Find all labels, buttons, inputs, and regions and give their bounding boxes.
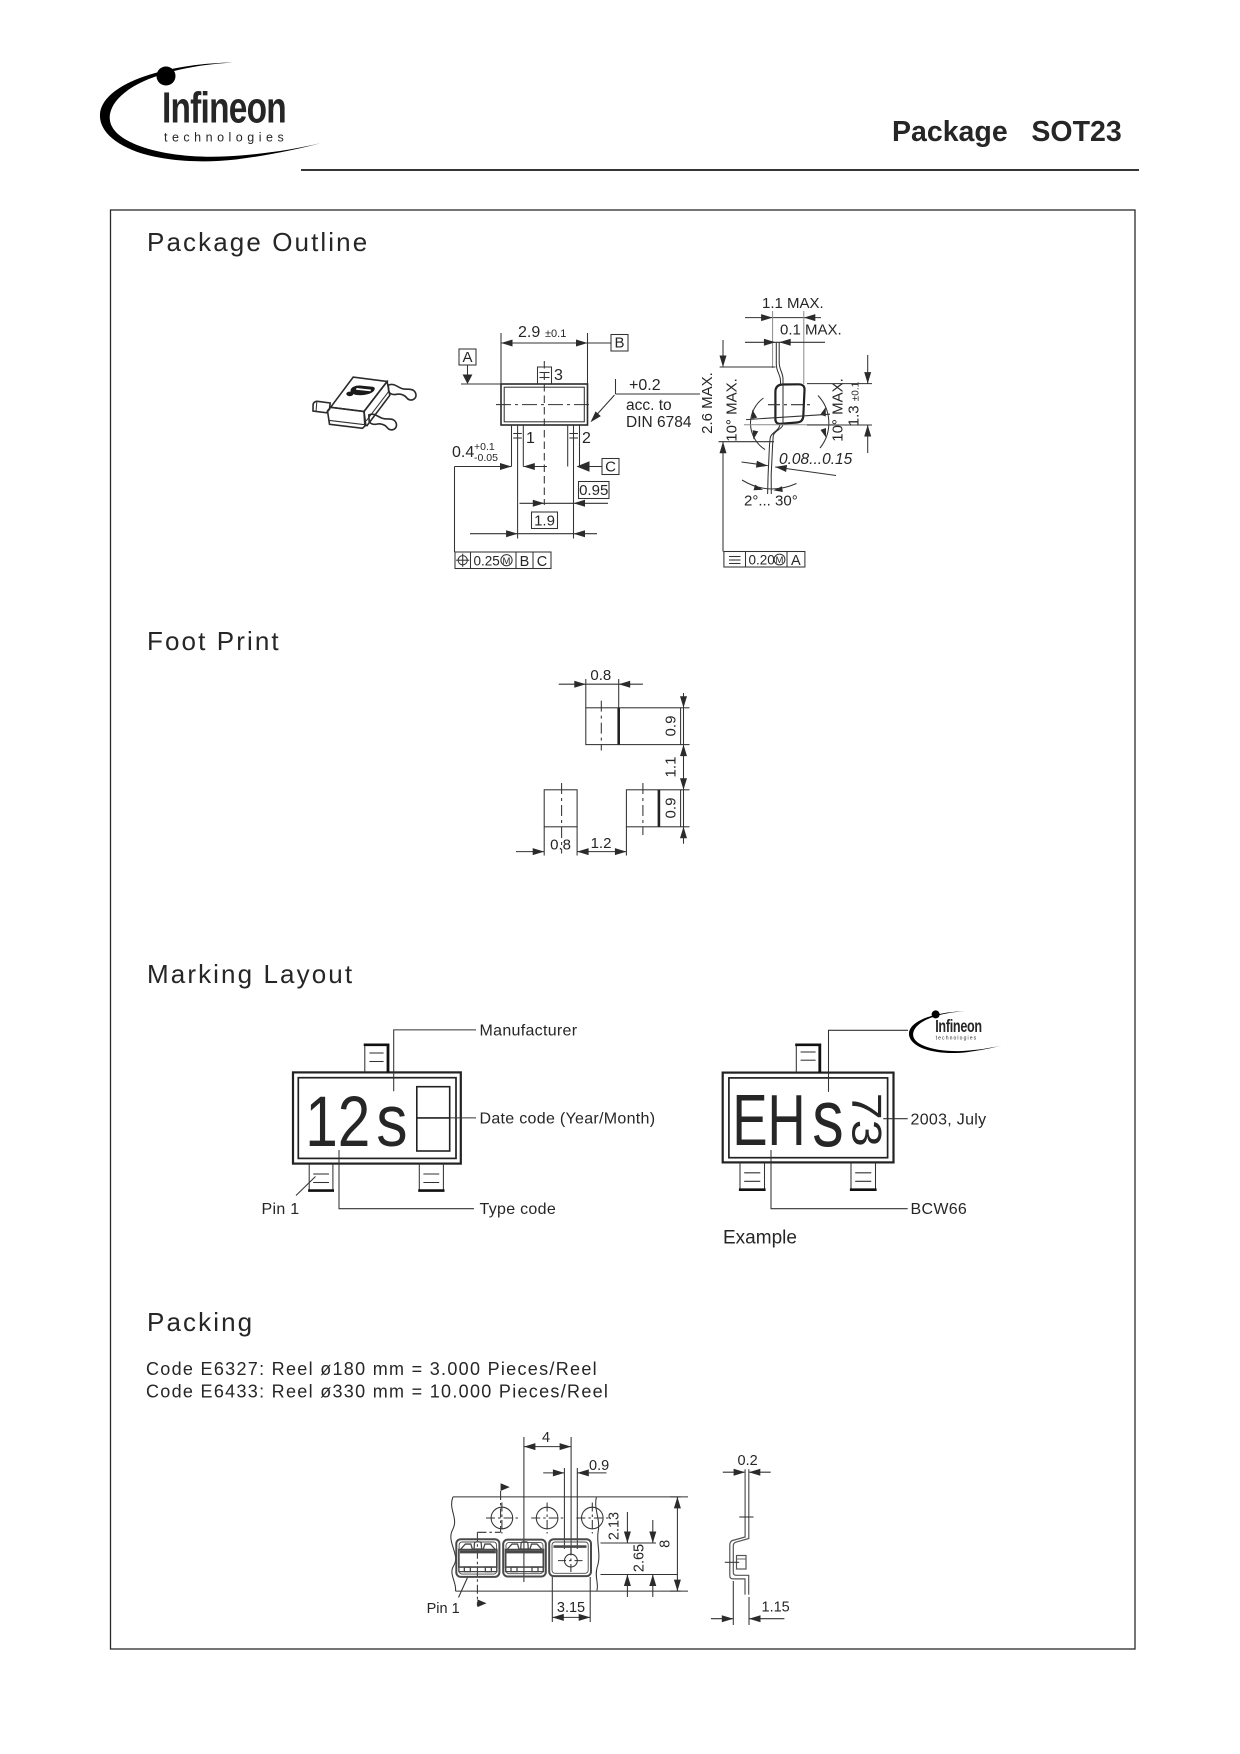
svg-text:DIN 6784: DIN 6784	[626, 414, 692, 431]
svg-text:3: 3	[554, 367, 563, 384]
svg-text:Code E6327: Reel ø180 mm = 3.0: Code E6327: Reel ø180 mm = 3.000 Pieces/…	[146, 1359, 598, 1379]
svg-text:0.25: 0.25	[474, 554, 500, 569]
svg-text:1: 1	[526, 430, 535, 447]
svg-text:1.3 ±0.1: 1.3 ±0.1	[846, 381, 863, 426]
svg-text:Example: Example	[723, 1228, 797, 1249]
svg-text:acc. to: acc. to	[626, 397, 672, 414]
svg-text:2.65: 2.65	[632, 1544, 648, 1572]
svg-text:technologies: technologies	[936, 1035, 978, 1041]
svg-text:Pin 1: Pin 1	[262, 1201, 300, 1218]
svg-text:10° MAX.: 10° MAX.	[724, 378, 741, 442]
svg-text:B: B	[614, 335, 624, 352]
svg-text:C: C	[537, 554, 547, 570]
svg-text:0.20: 0.20	[749, 553, 775, 568]
svg-text:4: 4	[542, 1430, 550, 1446]
svg-text:Pin 1: Pin 1	[427, 1601, 460, 1617]
svg-text:0.8: 0.8	[590, 667, 611, 684]
svg-text:Manufacturer: Manufacturer	[480, 1023, 578, 1040]
svg-text:Infineon: Infineon	[162, 84, 286, 132]
svg-text:2.13: 2.13	[607, 1512, 623, 1540]
svg-text:0.95: 0.95	[579, 482, 608, 499]
svg-text:2003, July: 2003, July	[911, 1112, 987, 1129]
svg-text:±0.1: ±0.1	[545, 328, 566, 340]
svg-text:C: C	[605, 459, 616, 476]
svg-text:0.8: 0.8	[550, 837, 571, 854]
svg-text:1.1: 1.1	[663, 757, 680, 778]
svg-text:12: 12	[305, 1081, 370, 1161]
svg-text:0.9: 0.9	[663, 716, 680, 737]
svg-text:2.6 MAX.: 2.6 MAX.	[699, 372, 716, 434]
svg-text:Package SOT23: Package SOT23	[892, 116, 1122, 148]
svg-text:technologies: technologies	[164, 131, 288, 145]
svg-text:+0.2: +0.2	[629, 377, 661, 394]
svg-text:Foot Print: Foot Print	[147, 626, 281, 656]
svg-text:1.1 MAX.: 1.1 MAX.	[762, 295, 824, 312]
svg-text:s: s	[376, 1080, 407, 1162]
svg-text:0.9: 0.9	[589, 1458, 609, 1474]
svg-text:Infineon: Infineon	[935, 1017, 982, 1037]
svg-text:Code E6433: Reel ø330 mm = 10.: Code E6433: Reel ø330 mm = 10.000 Pieces…	[146, 1382, 609, 1402]
svg-text:0.9: 0.9	[663, 798, 680, 819]
svg-text:0.2: 0.2	[738, 1453, 758, 1469]
svg-text:EH: EH	[732, 1081, 805, 1161]
svg-text:M: M	[776, 555, 784, 566]
svg-text:0.4: 0.4	[452, 444, 474, 461]
svg-text:Package Outline: Package Outline	[147, 227, 369, 257]
svg-text:B: B	[520, 554, 530, 570]
svg-text:1.9: 1.9	[534, 513, 555, 530]
svg-text:0.08...0.15: 0.08...0.15	[779, 451, 853, 468]
svg-text:1.15: 1.15	[762, 1600, 790, 1616]
svg-text:1.2: 1.2	[591, 835, 612, 852]
svg-text:BCW66: BCW66	[911, 1201, 968, 1218]
svg-text:Marking Layout: Marking Layout	[147, 959, 354, 989]
svg-text:A: A	[462, 349, 472, 366]
svg-text:2°... 30°: 2°... 30°	[744, 493, 798, 510]
svg-text:2: 2	[582, 430, 591, 447]
svg-text:3.15: 3.15	[557, 1600, 585, 1616]
svg-text:8: 8	[658, 1540, 674, 1548]
svg-text:0.1 MAX.: 0.1 MAX.	[780, 322, 842, 339]
svg-text:Type code: Type code	[480, 1201, 557, 1218]
svg-text:Date code (Year/Month): Date code (Year/Month)	[480, 1111, 656, 1128]
svg-text:10° MAX.: 10° MAX.	[830, 378, 847, 442]
svg-text:M: M	[503, 556, 511, 567]
svg-text:A: A	[791, 553, 801, 569]
svg-text:Packing: Packing	[147, 1307, 254, 1337]
svg-text:2.9: 2.9	[518, 324, 540, 341]
svg-text:73: 73	[844, 1093, 891, 1147]
svg-text:-0.05: -0.05	[474, 452, 498, 464]
